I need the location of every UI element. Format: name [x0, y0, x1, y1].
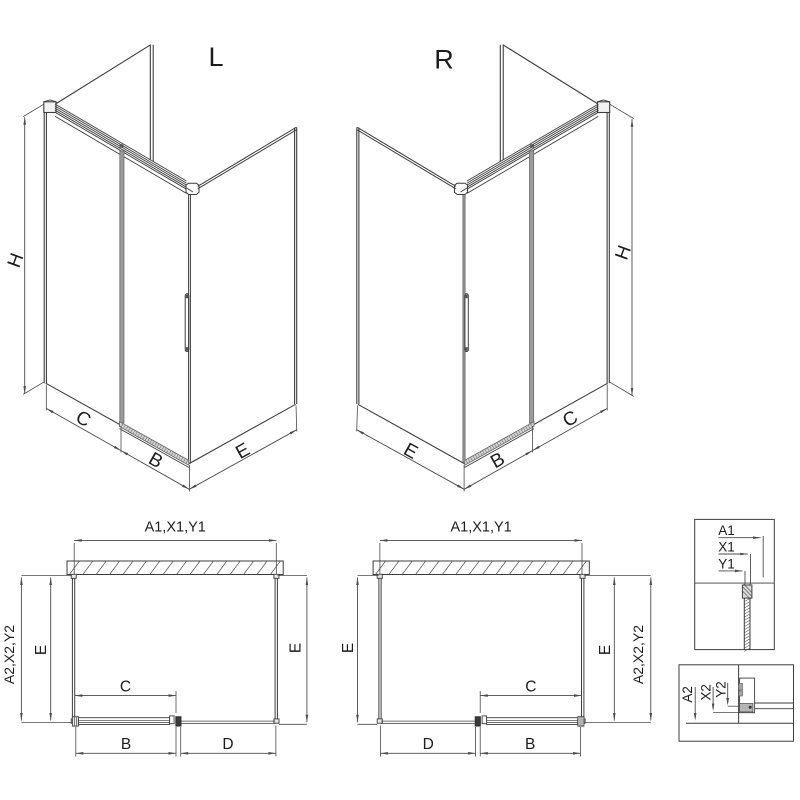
svg-text:B: B: [525, 736, 535, 753]
svg-text:E: E: [287, 643, 304, 653]
svg-text:E: E: [33, 645, 50, 655]
svg-text:C: C: [120, 679, 131, 696]
svg-text:X2: X2: [698, 684, 713, 701]
svg-text:Y1: Y1: [718, 556, 735, 571]
svg-text:X1: X1: [718, 540, 735, 555]
svg-text:A2,X2,Y2: A2,X2,Y2: [1, 625, 17, 684]
svg-text:R: R: [434, 45, 454, 75]
svg-text:A2: A2: [680, 686, 695, 703]
svg-text:D: D: [423, 736, 434, 753]
svg-text:A1,X1,Y1: A1,X1,Y1: [450, 519, 511, 535]
svg-text:B: B: [121, 736, 131, 753]
svg-text:A1,X1,Y1: A1,X1,Y1: [145, 519, 206, 535]
svg-text:A1: A1: [718, 523, 735, 538]
svg-text:E: E: [340, 643, 357, 653]
svg-text:Y2: Y2: [714, 681, 729, 698]
svg-text:E: E: [597, 645, 614, 655]
svg-text:D: D: [222, 736, 233, 753]
svg-text:C: C: [525, 679, 536, 696]
svg-text:L: L: [208, 42, 223, 72]
svg-text:A2,X2,Y2: A2,X2,Y2: [630, 625, 646, 684]
